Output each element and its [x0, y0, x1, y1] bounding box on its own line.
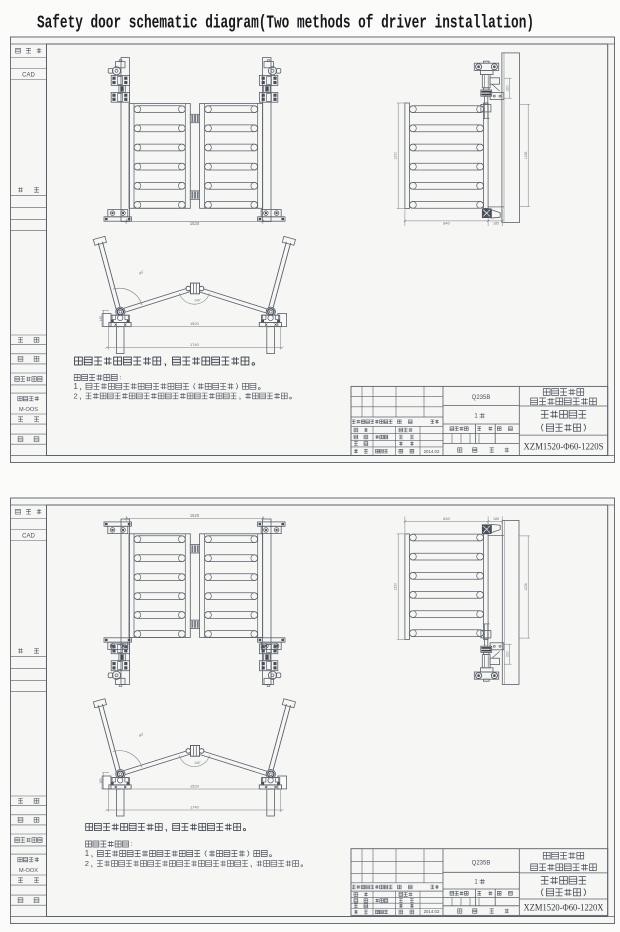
svg-text:220: 220: [505, 85, 509, 91]
svg-text:1740: 1740: [190, 804, 200, 809]
svg-text:840: 840: [443, 221, 450, 226]
svg-text:1520: 1520: [190, 513, 200, 518]
svg-text:XZM1520-Φ60-1220X: XZM1520-Φ60-1220X: [524, 902, 604, 913]
svg-text:140°: 140°: [194, 299, 201, 303]
svg-text:CAD: CAD: [22, 533, 35, 539]
svg-text:Q235B: Q235B: [472, 395, 491, 401]
svg-text:2: 2: [74, 392, 78, 401]
svg-text:165: 165: [99, 316, 103, 322]
svg-text:1236: 1236: [524, 152, 528, 160]
svg-text:M-OOX: M-OOX: [19, 868, 38, 874]
svg-text:1220: 1220: [394, 583, 398, 591]
svg-text:140°: 140°: [194, 761, 201, 765]
svg-text:Safety door schematic diagram(: Safety door schematic diagram(Two method…: [37, 13, 534, 34]
svg-text:1520: 1520: [190, 783, 200, 788]
svg-text:1220: 1220: [394, 152, 398, 160]
svg-text:1520: 1520: [190, 221, 200, 226]
svg-text:2014.02: 2014.02: [424, 909, 440, 914]
svg-text:840: 840: [443, 516, 450, 521]
svg-text:M-OOS: M-OOS: [19, 407, 38, 413]
svg-text:2014.02: 2014.02: [424, 449, 440, 454]
svg-text:185: 185: [493, 222, 499, 226]
svg-text:Q235B: Q235B: [472, 860, 491, 866]
svg-text:1520: 1520: [190, 321, 200, 326]
svg-text:1: 1: [85, 849, 89, 858]
svg-text:1236: 1236: [524, 583, 528, 591]
svg-text:220: 220: [505, 651, 509, 657]
svg-text:165: 165: [99, 778, 103, 784]
svg-text:1740: 1740: [190, 342, 200, 347]
svg-text:2: 2: [85, 859, 89, 868]
svg-text:XZM1520-Φ60-1220S: XZM1520-Φ60-1220S: [524, 441, 604, 452]
svg-text:CAD: CAD: [22, 72, 35, 78]
svg-text:1: 1: [74, 382, 78, 391]
svg-text:185: 185: [493, 517, 499, 521]
